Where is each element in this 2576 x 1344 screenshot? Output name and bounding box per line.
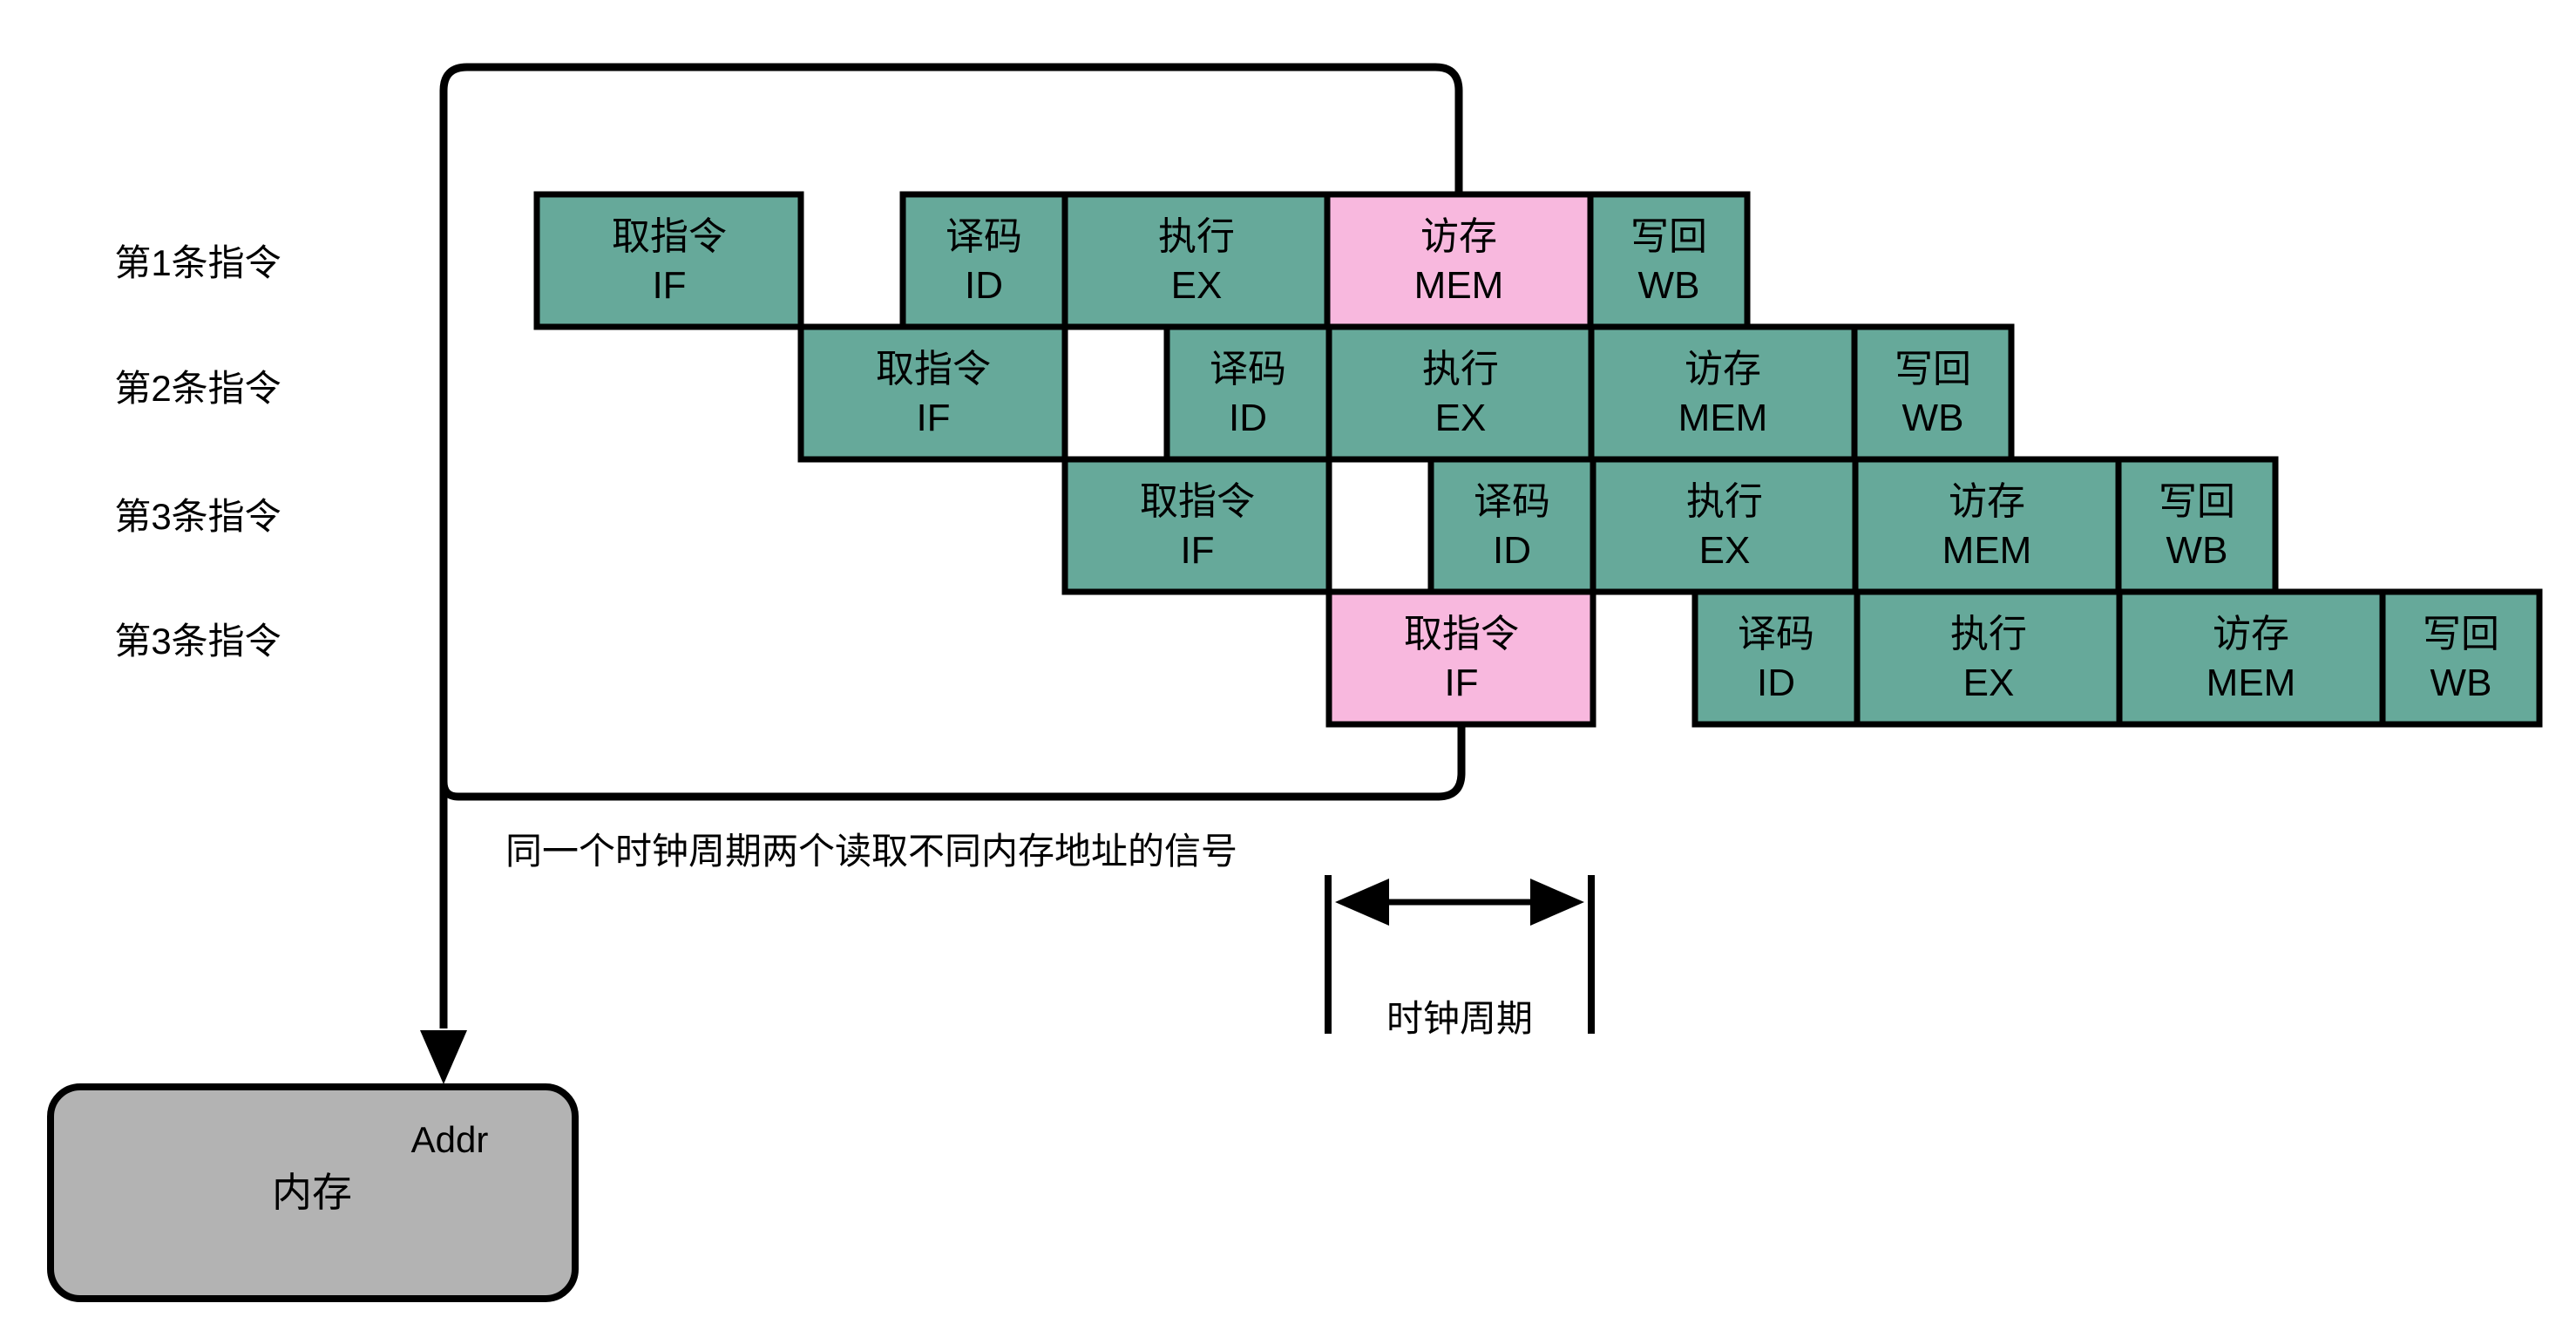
stage-label-cn: 访存	[1949, 480, 2025, 523]
stage-block-id	[903, 194, 1065, 327]
stage-label-en: IF	[1444, 662, 1478, 704]
stage-label-cn: 译码	[1738, 613, 1814, 655]
right-arrowhead-icon	[1530, 879, 1584, 926]
down-arrowhead-icon	[420, 1030, 467, 1084]
stage-block-if	[1065, 459, 1329, 592]
stage-label-en: MEM	[2207, 662, 2296, 704]
stage-label-en: WB	[2430, 662, 2492, 704]
pipeline-row-3: 取指令 IF 译码 ID 执行 EX 访存 MEM 写回 WB	[1065, 459, 2275, 592]
stage-label-en: IF	[1180, 529, 1214, 572]
stage-block-ex	[1857, 592, 2119, 724]
pipeline-row-4: 取指令 IF 译码 ID 执行 EX 访存 MEM 写回 WB	[1329, 592, 2539, 724]
stage-block-id	[1431, 459, 1593, 592]
stage-block-if-highlighted	[1329, 592, 1593, 724]
stage-label-cn: 访存	[1420, 215, 1497, 258]
hazard-annotation: 同一个时钟周期两个读取不同内存地址的信号	[505, 831, 1237, 872]
mem-access-wire-bottom	[444, 722, 1461, 797]
stage-label-cn: 取指令	[876, 348, 991, 390]
memory-label: 内存	[272, 1170, 352, 1215]
stage-label-en: MEM	[1942, 529, 2032, 572]
stage-label-cn: 译码	[946, 215, 1022, 258]
stage-label-en: ID	[965, 264, 1003, 307]
row-label-4: 第3条指令	[114, 621, 281, 662]
pipeline-row-1: 取指令 IF 译码 ID 执行 EX 访存 MEM 写回 WB	[537, 194, 1747, 327]
stage-block-wb	[1590, 194, 1747, 327]
stage-label-cn: 写回	[1630, 215, 1707, 258]
stage-block-id	[1695, 592, 1857, 724]
stage-block-id	[1167, 327, 1329, 459]
stage-block-ex	[1065, 194, 1327, 327]
stage-block-if	[537, 194, 801, 327]
stage-label-en: WB	[1638, 264, 1700, 307]
row-label-1: 第1条指令	[114, 242, 281, 283]
stage-label-cn: 访存	[2213, 613, 2289, 655]
stage-block-mem	[1591, 327, 1854, 459]
stage-label-cn: 执行	[1422, 348, 1499, 390]
stage-block-wb	[2118, 459, 2275, 592]
row-label-3: 第3条指令	[114, 496, 281, 537]
stage-label-cn: 译码	[1474, 480, 1550, 523]
stage-label-cn: 执行	[1686, 480, 1763, 523]
stage-block-mem-highlighted	[1327, 194, 1590, 327]
stage-block-mem	[1855, 459, 2118, 592]
addr-port-label: Addr	[411, 1119, 489, 1160]
stage-block-if	[801, 327, 1065, 459]
stage-label-en: ID	[1493, 529, 1531, 572]
stage-label-en: EX	[1171, 264, 1223, 307]
stage-label-cn: 执行	[1158, 215, 1235, 258]
stage-block-wb	[2383, 592, 2539, 724]
row-label-2: 第2条指令	[114, 368, 281, 409]
stage-block-ex	[1329, 327, 1591, 459]
stage-label-cn: 访存	[1685, 348, 1761, 390]
pipeline-hazard-diagram: 第1条指令 第2条指令 第3条指令 第3条指令 取指令 IF 译码 ID 执行 …	[0, 0, 2576, 1340]
clock-cycle-annotation: 时钟周期	[1328, 875, 1591, 1039]
stage-block-wb	[1854, 327, 2011, 459]
stage-label-en: EX	[1699, 529, 1751, 572]
stage-label-en: ID	[1229, 397, 1267, 439]
stage-label-en: EX	[1435, 397, 1487, 439]
stage-label-en: WB	[1902, 397, 1964, 439]
left-arrowhead-icon	[1335, 879, 1389, 926]
clock-cycle-label: 时钟周期	[1386, 998, 1533, 1039]
stage-label-en: ID	[1757, 662, 1795, 704]
stage-label-en: WB	[2166, 529, 2228, 572]
diagram-svg: 第1条指令 第2条指令 第3条指令 第3条指令 取指令 IF 译码 ID 执行 …	[0, 0, 2576, 1340]
stage-block-mem	[2119, 592, 2383, 724]
stage-label-cn: 取指令	[1140, 480, 1255, 523]
stage-label-cn: 执行	[1950, 613, 2027, 655]
stage-label-en: EX	[1963, 662, 2015, 704]
stage-label-cn: 写回	[1895, 348, 1971, 390]
stage-label-en: IF	[916, 397, 950, 439]
stage-block-ex	[1593, 459, 1855, 592]
stage-label-cn: 取指令	[612, 215, 727, 258]
stage-label-cn: 写回	[2423, 613, 2499, 655]
stage-label-en: MEM	[1678, 397, 1768, 439]
stage-label-cn: 写回	[2159, 480, 2235, 523]
stage-label-cn: 取指令	[1404, 613, 1519, 655]
stage-label-cn: 译码	[1210, 348, 1286, 390]
stage-label-en: IF	[652, 264, 686, 307]
stage-label-en: MEM	[1414, 264, 1504, 307]
pipeline-row-2: 取指令 IF 译码 ID 执行 EX 访存 MEM 写回 WB	[801, 327, 2011, 459]
memory-unit: Addr 内存	[51, 1087, 575, 1299]
